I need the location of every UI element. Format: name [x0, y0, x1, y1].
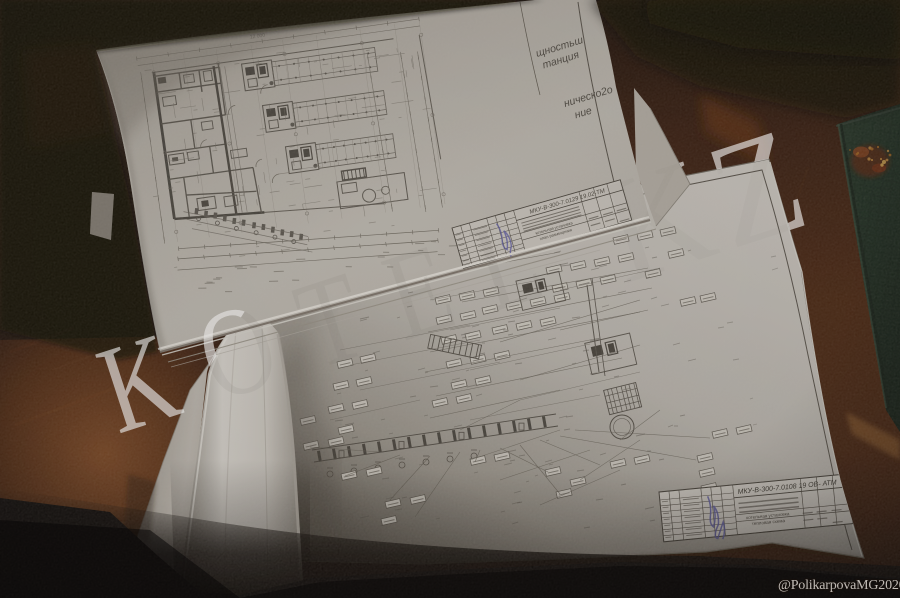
svg-text:@PolikarpovaMG2020: @PolikarpovaMG2020: [778, 578, 900, 593]
